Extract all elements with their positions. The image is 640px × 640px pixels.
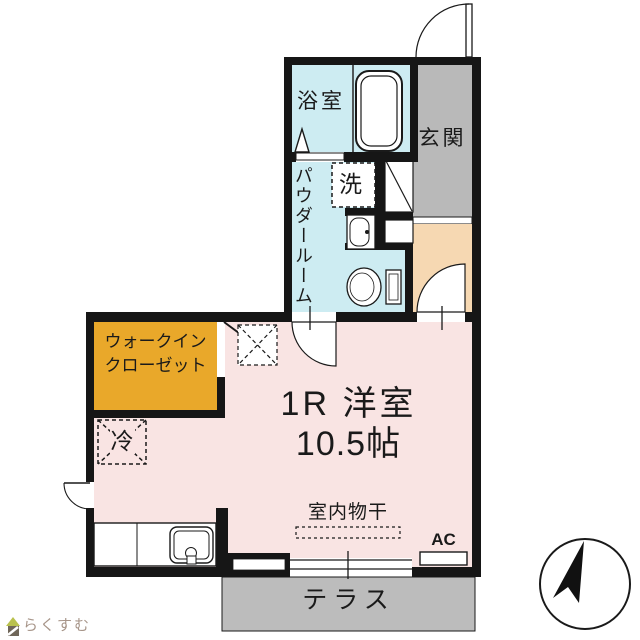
refrigerator-label: 冷	[98, 429, 146, 453]
entrance-step	[413, 217, 472, 224]
entrance-storage-box	[385, 220, 413, 243]
terrace-label: テラス	[222, 587, 475, 613]
entrance-label: 玄関	[413, 128, 472, 150]
entrance-door-swing-arc	[416, 4, 469, 57]
north-arrow-icon	[540, 539, 630, 629]
walk-in-closet-label-line1: ウォークイン	[94, 333, 217, 351]
floorplan-canvas: 浴室 パウダールーム 洗 玄関 ウォークイン クローゼット 冷 1R 洋室 10…	[0, 0, 640, 640]
indoor-drying-label: 室内物干	[296, 503, 400, 523]
storage-box-icon	[238, 325, 277, 365]
wic-opening	[217, 322, 225, 377]
washbasin-icon	[347, 215, 375, 249]
window-icon	[233, 559, 285, 570]
washer-label: 洗	[339, 172, 362, 196]
powder-room-label: パウダールーム	[293, 166, 312, 306]
main-room-type-label: 1R 洋室	[225, 387, 472, 423]
main-room-size-label: 10.5帖	[225, 427, 472, 463]
bathtub-icon	[356, 71, 402, 151]
entrance-door-leaf	[466, 4, 472, 57]
toilet-bowl-icon	[347, 268, 381, 306]
logo-text: らくすむ	[23, 618, 91, 634]
toilet-tank	[386, 270, 401, 304]
washbasin-faucet	[365, 230, 369, 234]
bathroom-door-threshold	[296, 153, 344, 160]
house-icon	[6, 617, 20, 636]
walk-in-closet-label-line2: クローゼット	[94, 357, 217, 375]
service-door-swing-arc	[64, 483, 90, 509]
bathroom-label: 浴室	[297, 91, 345, 113]
ac-unit-icon	[420, 552, 467, 565]
ac-label: AC	[419, 531, 468, 549]
kitchen-faucet-base	[187, 556, 196, 564]
